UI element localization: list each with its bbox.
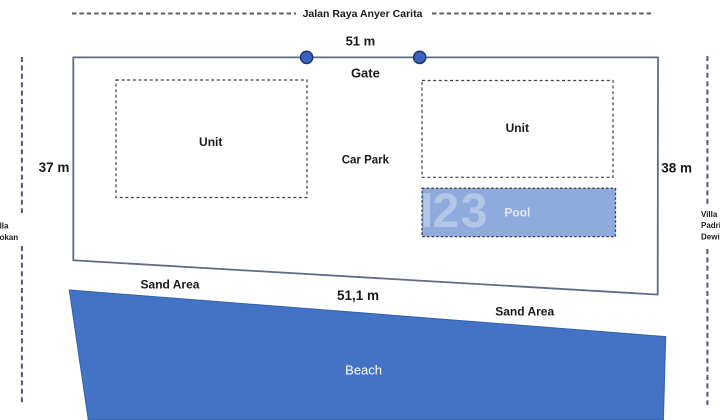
svg-text:Villa: Villa (0, 222, 9, 231)
svg-text:Pool: Pool (504, 206, 530, 220)
svg-text:Unit: Unit (506, 121, 529, 135)
svg-text:51,1 m: 51,1 m (337, 288, 379, 303)
svg-text:Sand Area: Sand Area (495, 305, 554, 319)
svg-text:37 m: 37 m (39, 160, 70, 175)
svg-text:Gate: Gate (351, 65, 380, 80)
svg-text:Unit: Unit (199, 135, 222, 149)
svg-text:23: 23 (433, 185, 489, 238)
svg-text:Beach: Beach (345, 362, 382, 377)
svg-text:Padri: Padri (701, 221, 720, 230)
svg-text:Car Park: Car Park (342, 155, 390, 167)
svg-text:51 m: 51 m (346, 34, 376, 49)
svg-text:Sand Area: Sand Area (141, 278, 200, 292)
svg-text:Dewi: Dewi (701, 232, 720, 241)
svg-text:38 m: 38 m (661, 161, 692, 176)
svg-text:Villa: Villa (701, 210, 718, 219)
svg-text:Pondokan: Pondokan (0, 233, 18, 242)
svg-text:Jalan Raya Anyer Carita: Jalan Raya Anyer Carita (303, 8, 423, 20)
